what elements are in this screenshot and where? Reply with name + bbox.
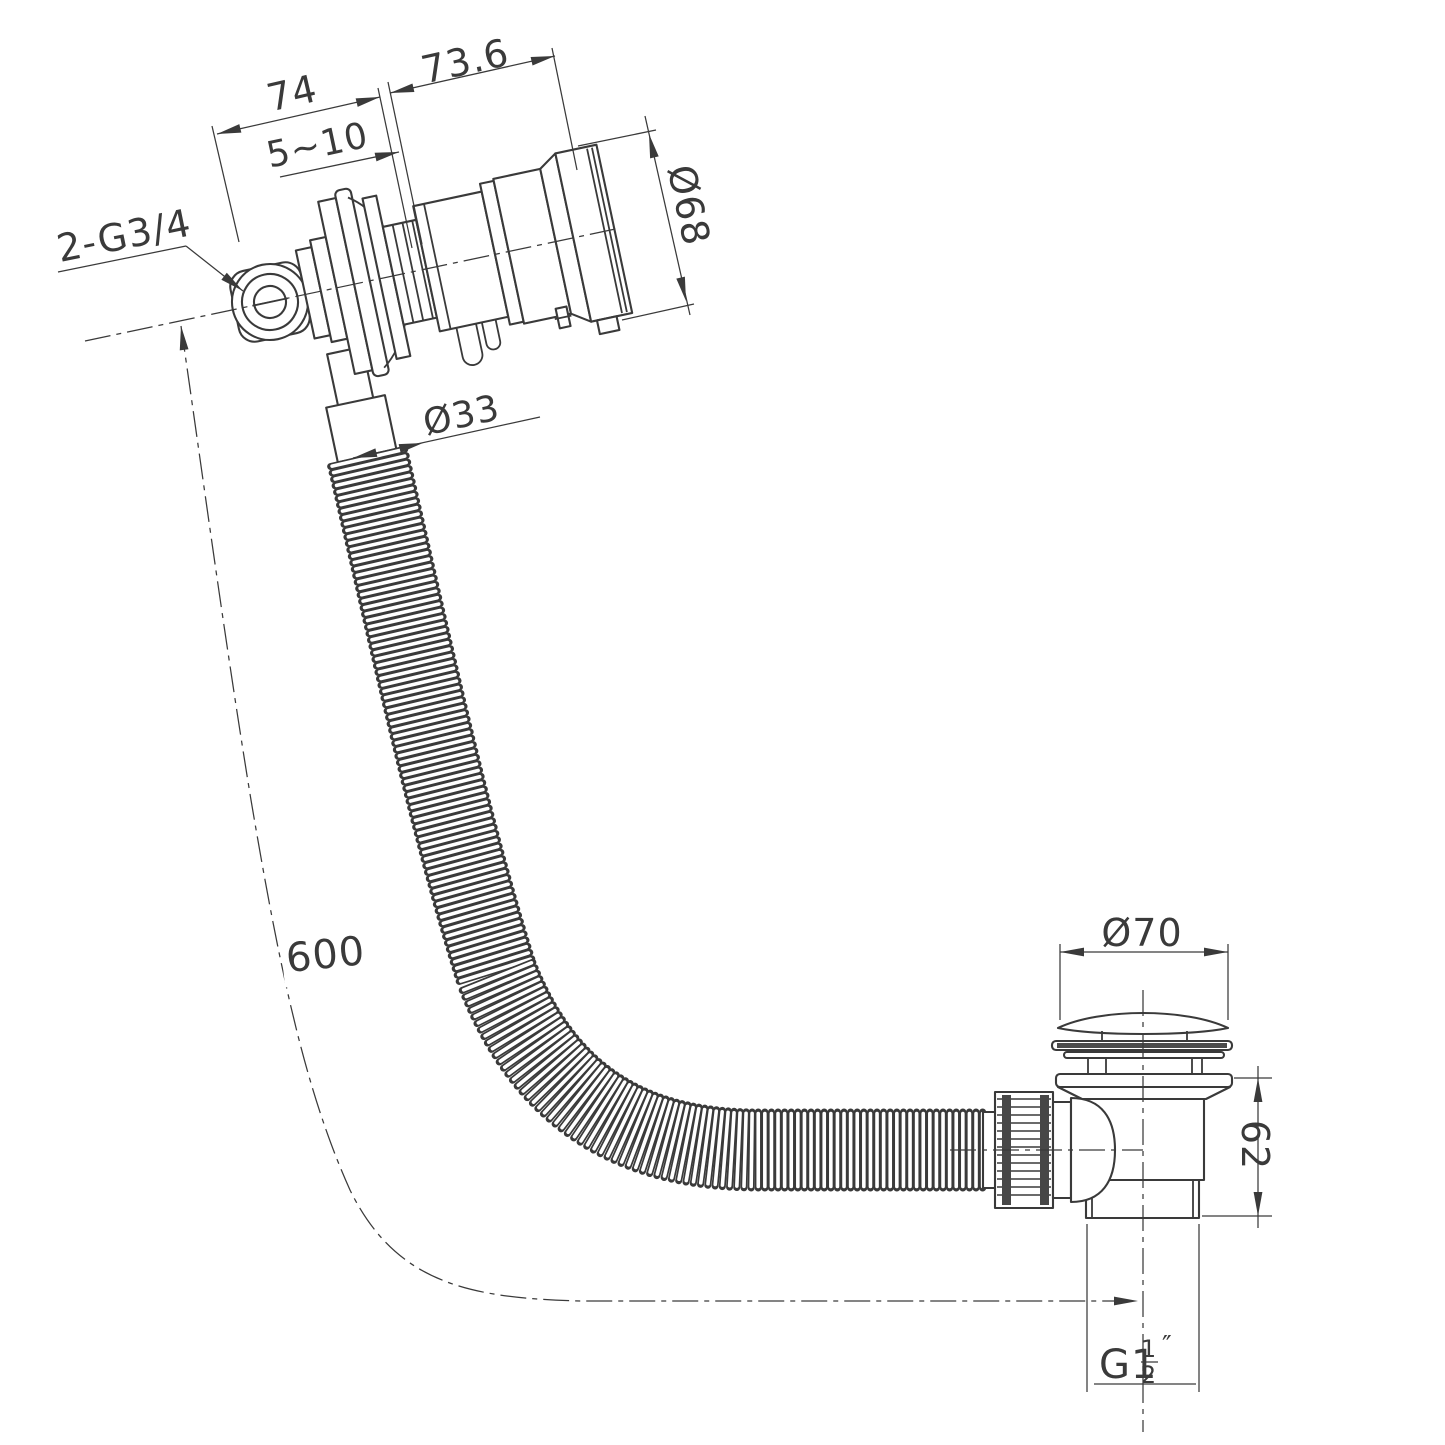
dim-thread-numerator: 1 xyxy=(1141,1335,1157,1363)
flange-taper xyxy=(1058,1087,1230,1099)
dim-600-label: 600 xyxy=(284,928,368,982)
waste-assembly xyxy=(983,1013,1232,1218)
centerlines xyxy=(85,228,1143,1432)
retaining-clip xyxy=(456,324,484,367)
dim-70-label: Ø70 xyxy=(1101,911,1182,955)
knob-stub xyxy=(597,316,619,334)
seal-washer-lower xyxy=(1064,1052,1224,1058)
dim-5-10-label: 5~10 xyxy=(263,115,372,176)
dim-thread-inch-mark: ″ xyxy=(1162,1331,1173,1361)
hose-corrugations xyxy=(331,449,983,1188)
seal-washer-shade xyxy=(1057,1043,1227,1048)
dim-68-label: Ø68 xyxy=(659,161,719,250)
dim-62-label: 62 xyxy=(1233,1120,1277,1170)
dim-thread-denominator: 2 xyxy=(1141,1361,1157,1389)
technical-drawing-page: 74 73.6 5~10 Ø68 2-G3/4 Ø33 600 Ø70 62 G… xyxy=(0,0,1445,1445)
flexible-hose xyxy=(331,449,985,1188)
dim-73-6-label: 73.6 xyxy=(417,30,513,92)
technical-drawing: 74 73.6 5~10 Ø68 2-G3/4 Ø33 600 Ø70 62 G… xyxy=(0,0,1445,1445)
waste-flange xyxy=(1056,1074,1232,1087)
dim-68-ext-top xyxy=(578,130,656,146)
dim-74-ext xyxy=(212,126,239,242)
dim-33-label: Ø33 xyxy=(419,387,503,444)
dim-ext-clamp-face xyxy=(388,82,422,244)
retaining-clip xyxy=(482,319,502,350)
label-inlet-threads: 2-G3/4 xyxy=(53,201,195,271)
